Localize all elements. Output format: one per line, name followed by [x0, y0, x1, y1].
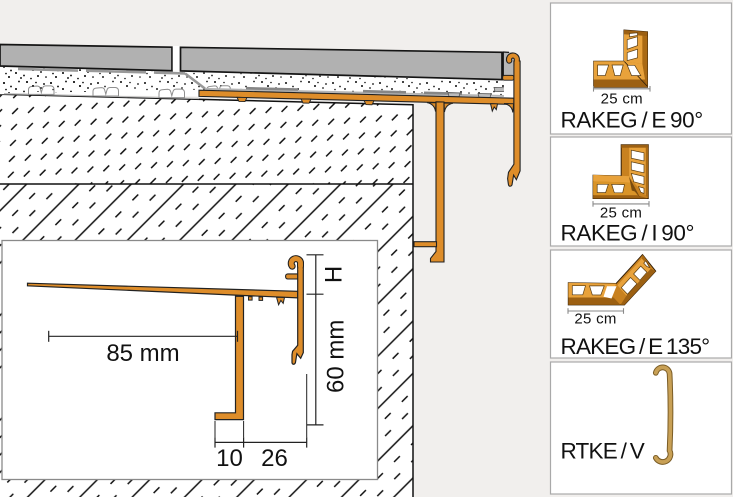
svg-text:10: 10: [216, 445, 243, 472]
svg-text:85 mm: 85 mm: [106, 340, 179, 367]
svg-text:RTKE / V: RTKE / V: [561, 439, 645, 464]
svg-text:25 cm: 25 cm: [574, 310, 616, 327]
svg-text:H: H: [321, 266, 348, 283]
svg-text:RAKEG / I 90°: RAKEG / I 90°: [561, 221, 695, 246]
svg-text:25 cm: 25 cm: [600, 204, 642, 221]
svg-text:25 cm: 25 cm: [601, 90, 643, 107]
svg-text:RAKEG / E 90°: RAKEG / E 90°: [561, 108, 703, 133]
svg-text:RAKEG / E 135°: RAKEG / E 135°: [561, 334, 710, 359]
svg-text:26: 26: [261, 445, 288, 472]
svg-text:60 mm: 60 mm: [323, 320, 350, 393]
